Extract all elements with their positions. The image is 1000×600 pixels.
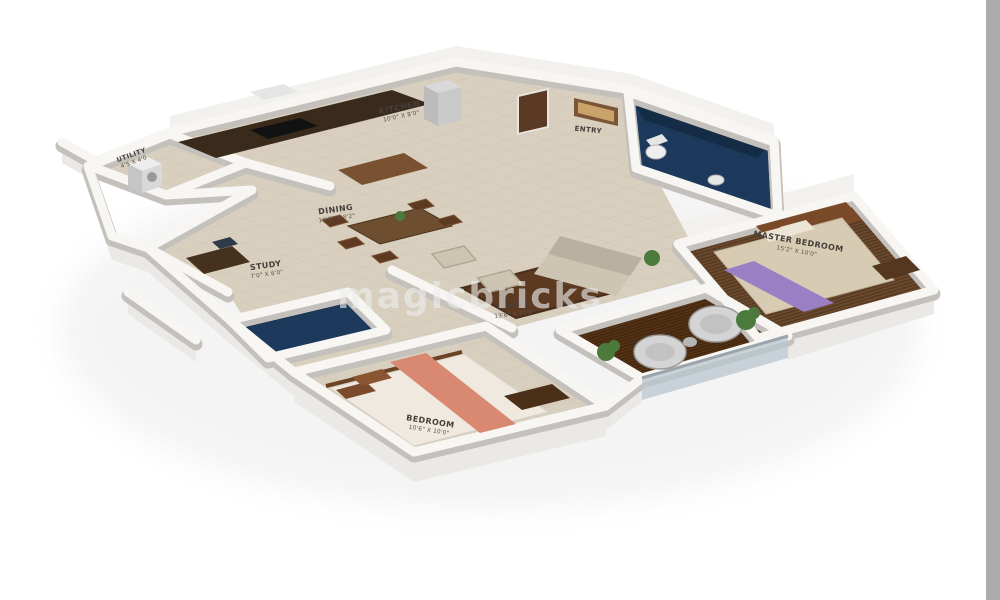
fridge-front [438, 87, 462, 126]
fridge-side [424, 86, 438, 126]
balcony-chair-cushion [645, 343, 675, 361]
floor-plan-screenshot: UTILITY 4'5 X 4'0 KITCHEN 10'0" X 8'0" E… [0, 0, 1000, 600]
washing-machine-door [147, 172, 157, 182]
plant [608, 340, 620, 352]
right-edge-bar [986, 0, 1000, 600]
table-plant [395, 211, 405, 221]
balcony-chair-cushion [700, 314, 732, 334]
floor-plan-3d-render: UTILITY 4'5 X 4'0 KITCHEN 10'0" X 8'0" E… [0, 0, 1000, 600]
watermark-text: magicbricks [337, 276, 603, 317]
toilet-bowl [646, 145, 666, 159]
balcony-side-table [683, 337, 697, 347]
wash-basin [708, 175, 724, 185]
living-plant [644, 250, 660, 266]
plant [748, 307, 760, 319]
entry-door [518, 89, 548, 134]
